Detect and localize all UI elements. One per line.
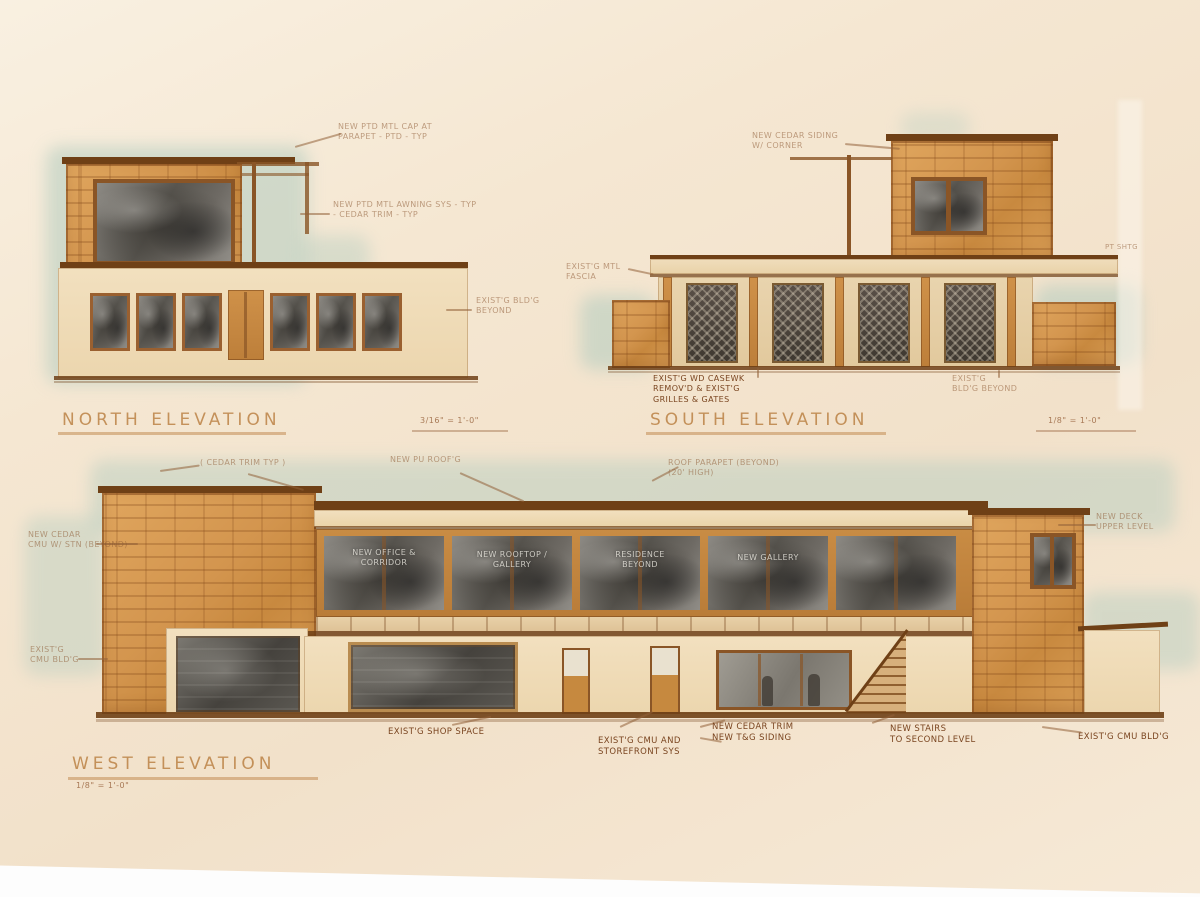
leader-line [295, 133, 342, 148]
south-grille-panel [686, 283, 738, 363]
scale-underline [1036, 430, 1136, 432]
north-ground-shadow [54, 381, 478, 383]
west-outbuilding-wall [1084, 630, 1160, 714]
annotation: NEW DECK UPPER LEVEL [1096, 512, 1188, 533]
window-label: NEW ROOFTOP / GALLERY [452, 550, 572, 571]
north-window [136, 293, 176, 351]
annotation: ( CEDAR TRIM TYP ) [200, 458, 360, 468]
annotation: NEW STAIRS TO SECOND LEVEL [890, 724, 1010, 746]
north-window [270, 293, 310, 351]
title-west-elevation: WEST ELEVATION [72, 754, 275, 774]
south-stone-wall-left [612, 300, 670, 368]
west-door [562, 648, 590, 714]
north-window [182, 293, 222, 351]
window-label: NEW GALLERY [708, 553, 828, 563]
south-parapet-cap [886, 134, 1058, 141]
annotation: EXIST'G CMU AND STOREFRONT SYS [598, 736, 728, 758]
annotation: EXIST'G BLD'G BEYOND [476, 296, 576, 317]
north-large-window [93, 179, 235, 265]
figure-silhouette [808, 674, 820, 706]
south-post [921, 277, 930, 367]
annotation: EXIST'G CMU BLD'G [1078, 732, 1190, 743]
south-awning-post [847, 155, 851, 267]
north-awning-post [305, 162, 309, 234]
annotation: NEW PTD MTL AWNING SYS - TYP - CEDAR TRI… [333, 200, 533, 221]
north-ground-line [54, 376, 478, 380]
scale-label: 3/16" = 1'-0" [420, 416, 479, 425]
annotation: EXIST'G CMU BLD'G [30, 645, 110, 666]
window-mullion [894, 536, 898, 610]
west-left-parapet-cap [98, 486, 322, 493]
scale-label: 1/8" = 1'-0" [76, 781, 129, 790]
scale-underline [412, 430, 508, 432]
west-storefront-window [716, 650, 852, 710]
annotation: EXIST'G MTL FASCIA [566, 262, 650, 283]
south-grille-panel [858, 283, 910, 363]
window-mullion [766, 536, 770, 610]
south-grille-panel [944, 283, 996, 363]
leader-line [1042, 726, 1082, 734]
west-garage-door-1 [176, 636, 300, 712]
leader-line [300, 213, 330, 215]
north-window [362, 293, 402, 351]
south-post [835, 277, 844, 367]
south-post [749, 277, 758, 367]
photo-mat-edge [0, 852, 1200, 897]
storefront-mullion [758, 654, 761, 706]
south-window-mullion [946, 181, 951, 231]
west-tower-cap [968, 508, 1090, 515]
west-fascia [314, 510, 988, 527]
title-south-elevation: SOUTH ELEVATION [650, 410, 869, 430]
title-underline [646, 432, 886, 435]
south-awning-line [790, 157, 892, 160]
title-underline [68, 777, 318, 780]
window-mullion [510, 536, 514, 610]
annotation: EXIST'G BLD'G BEYOND [952, 374, 1062, 395]
annotation: NEW CEDAR CMU W/ STN (BEYOND) [28, 530, 132, 551]
window-label: NEW OFFICE & CORRIDOR [324, 548, 444, 569]
south-canopy-fascia [650, 259, 1118, 274]
annotation: EXIST'G WD CASEWK REMOV'D & EXIST'G GRIL… [653, 374, 813, 405]
annotation: NEW PTD MTL CAP AT PARAPET - PTD - TYP [338, 122, 498, 143]
leader-line [1058, 524, 1096, 526]
annotation: EXIST'G SHOP SPACE [388, 727, 548, 738]
annotation: ROOF PARAPET (BEYOND) (20' HIGH) [668, 458, 828, 479]
west-ground-line [96, 712, 1164, 718]
figure-silhouette [762, 676, 773, 706]
north-window [316, 293, 356, 351]
south-post [1007, 277, 1016, 367]
west-main-roofline [314, 501, 988, 510]
south-stone-wall-right [1032, 302, 1116, 366]
west-garage-door-2 [348, 642, 518, 712]
tower-window-mullion [1050, 537, 1054, 585]
title-north-elevation: NORTH ELEVATION [62, 410, 281, 430]
west-deck-band [316, 617, 976, 631]
south-ground-shadow [608, 371, 1120, 373]
title-underline [58, 432, 286, 435]
window-label: RESIDENCE BEYOND [580, 550, 700, 571]
south-ground-line [608, 366, 1120, 370]
storefront-mullion [800, 654, 803, 706]
window-mullion [638, 536, 642, 610]
paper-edge-band [1118, 100, 1142, 410]
north-awning-line [237, 173, 309, 176]
annotation: PT SHTG [1105, 243, 1165, 252]
annotation: NEW PU ROOF'G [390, 455, 500, 465]
scale-label: 1/8" = 1'-0" [1048, 416, 1101, 425]
south-grille-panel [772, 283, 824, 363]
leader-line [446, 309, 472, 311]
north-window [90, 293, 130, 351]
elevation-sheet: NEW PTD MTL CAP AT PARAPET - PTD - TYP N… [0, 0, 1200, 897]
north-door-divider [244, 292, 247, 358]
annotation: NEW CEDAR SIDING W/ CORNER [752, 131, 882, 152]
annotation: NEW CEDAR TRIM NEW T&G SIDING [712, 722, 842, 744]
west-door [650, 646, 680, 714]
